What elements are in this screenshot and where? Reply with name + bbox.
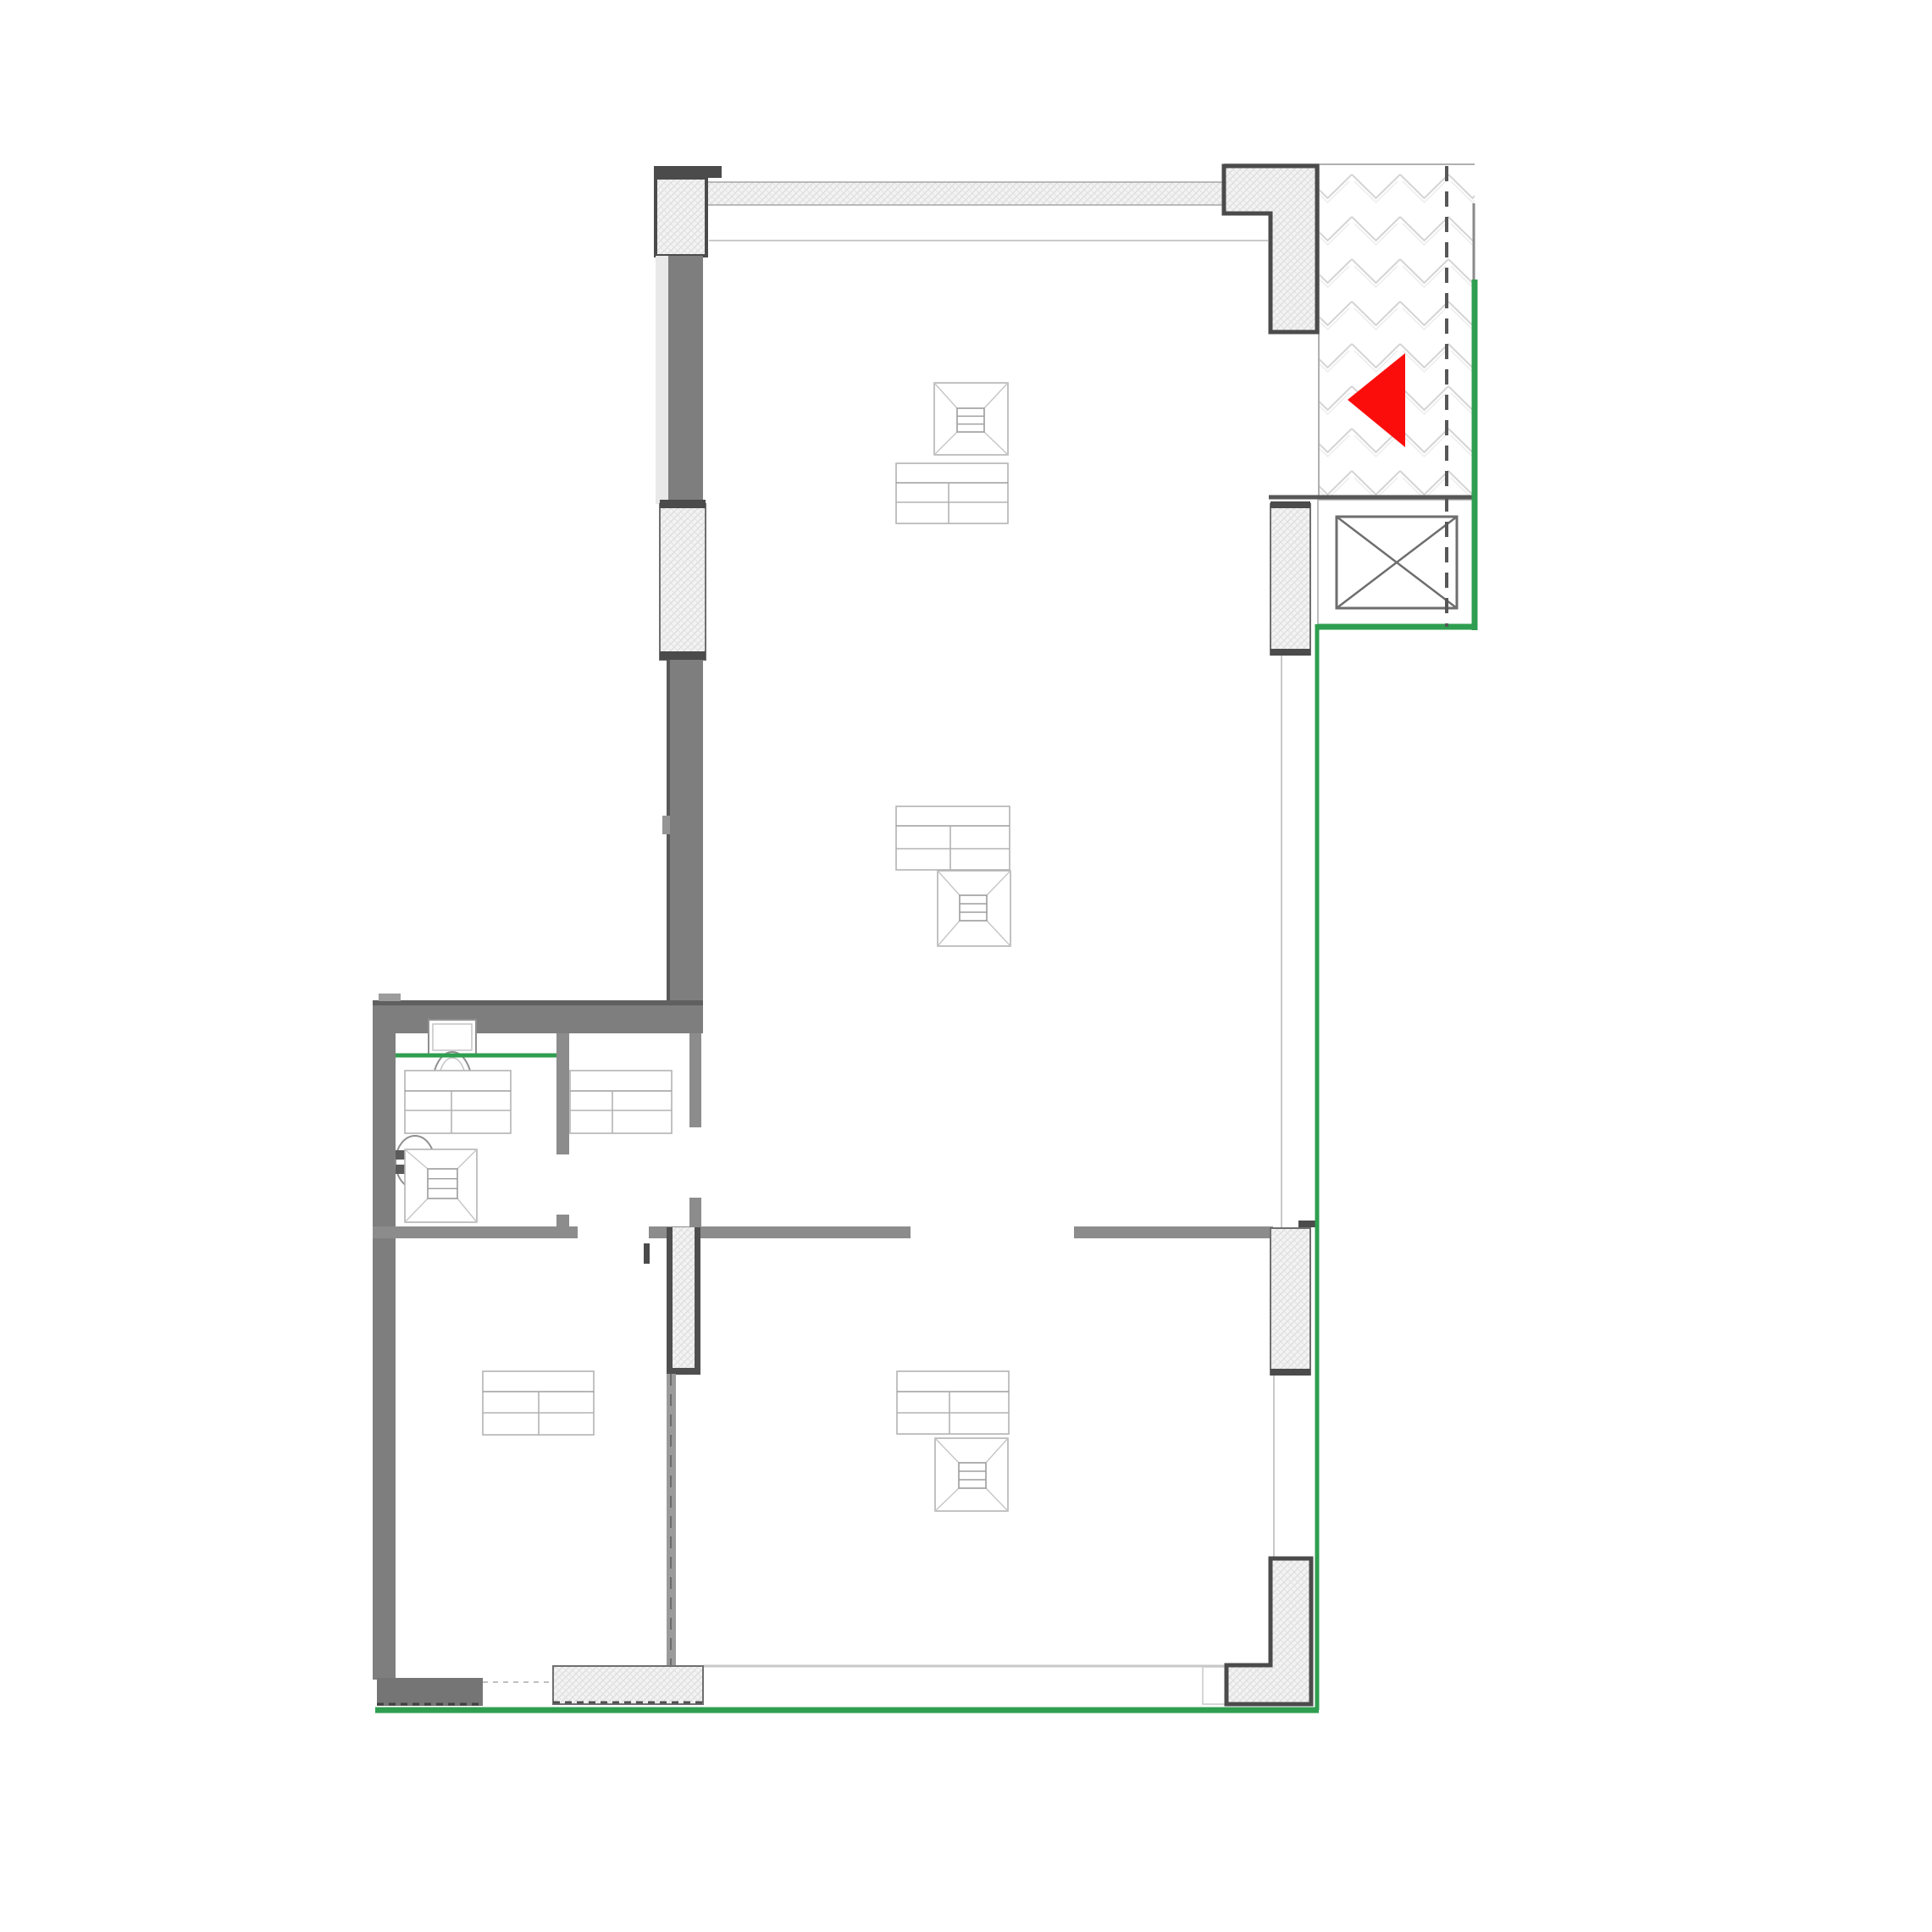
bath-partition-wall (556, 1033, 569, 1154)
main-room-skylight-center (938, 871, 1010, 946)
bottom-right-l-column (1226, 1558, 1311, 1704)
main-room-table-center-outline (896, 806, 1010, 870)
right-window-column-upper (1270, 504, 1310, 655)
right-window-column-upper-cap-top (1270, 501, 1310, 508)
bottom-window-block (553, 1666, 703, 1704)
room-southwest-table (483, 1371, 594, 1435)
left-window-cap-top (660, 500, 706, 508)
main-room-table-north (896, 463, 1008, 523)
middle-wall-east (1074, 1226, 1273, 1238)
room-south-table-outline (897, 1371, 1009, 1434)
room-south-table (897, 1371, 1009, 1434)
main-room-skylight-north-inner (957, 408, 984, 432)
right-window-column-mid-cap (1270, 1369, 1310, 1376)
left-wall-tall (373, 1033, 396, 1680)
bottom-right-small-opening (1203, 1667, 1226, 1704)
main-room-table-north-outline (896, 463, 1008, 523)
main-room-skylight-center-inner (960, 895, 987, 921)
left-window-block (660, 504, 706, 660)
left-wall-lower (670, 660, 703, 1033)
left-window-cap-bottom (660, 651, 706, 660)
toilet-tank (429, 1020, 476, 1055)
right-window-column-mid (1270, 1228, 1310, 1375)
bath-partition-stub (556, 1215, 569, 1227)
bathroom-table-outline (405, 1071, 511, 1133)
center-wall-stub-upper (689, 1033, 701, 1127)
room-south-skylight-inner (959, 1463, 986, 1488)
bath-bottom-wall (373, 1226, 578, 1238)
room2-table (570, 1071, 672, 1133)
left-wall-outer-strip (656, 256, 668, 504)
bathroom-table (405, 1071, 511, 1133)
basin-faucet-upper (396, 1150, 405, 1160)
main-room-table-center (896, 806, 1010, 870)
middle-wall-tick (644, 1243, 650, 1264)
center-door-block-right-jamb (695, 1227, 700, 1374)
basin-faucet-lower (396, 1165, 405, 1174)
floor-plan (0, 0, 1932, 1932)
bath-top-wall-edge (373, 1000, 703, 1005)
top-facade-band (706, 182, 1226, 205)
main-room-skylight-north (934, 383, 1008, 455)
bottom-left-corner-block (377, 1678, 483, 1706)
center-door-block-left-jamb (667, 1227, 673, 1374)
room2-table-outline (570, 1071, 672, 1133)
top-right-l-column (1224, 166, 1317, 332)
room-south-skylight (935, 1438, 1008, 1511)
center-wall-stub-lower (689, 1198, 701, 1227)
floor-plan-svg (0, 0, 1932, 1932)
shower-skylight (405, 1149, 477, 1222)
bath-top-wall-notch (379, 994, 401, 1001)
left-wall-section-tick (662, 816, 670, 834)
entry-corridor-paving (1319, 163, 1475, 499)
shower-skylight-inner (428, 1169, 457, 1199)
top-left-corner-column (656, 178, 706, 256)
middle-wall-east-cap (1298, 1221, 1317, 1227)
left-wall-upper (668, 256, 703, 504)
top-left-wall-cap (654, 166, 722, 178)
right-window-column-upper-cap-bottom (1270, 649, 1310, 656)
center-door-block-bottom-cap (667, 1368, 700, 1375)
